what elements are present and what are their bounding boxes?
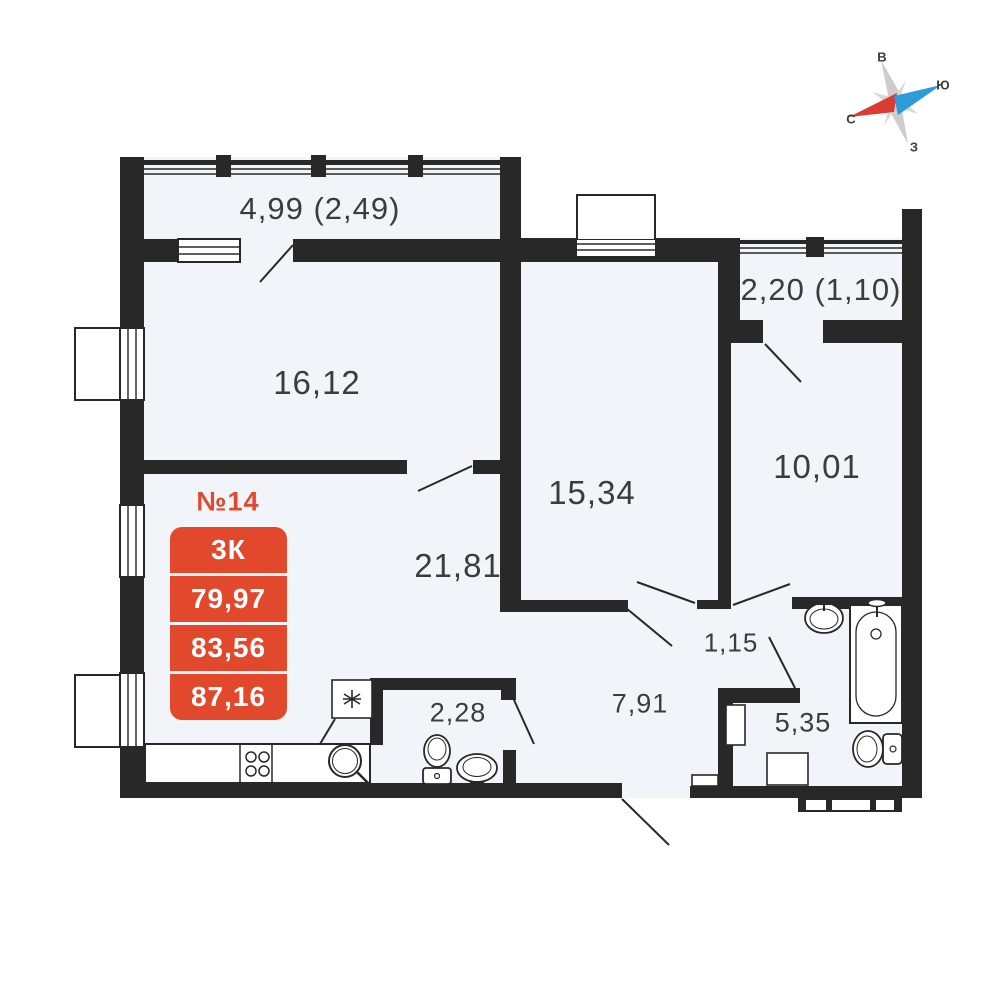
label-wc: 2,28	[430, 698, 487, 729]
vent-notches	[806, 800, 894, 810]
door-entrance	[622, 799, 669, 845]
window-bay	[75, 328, 120, 400]
compass-letter-left: С	[846, 112, 855, 127]
entrance-threshold	[692, 775, 718, 786]
window-bays	[75, 328, 120, 747]
wall	[718, 343, 731, 609]
label-bedroom-left: 16,12	[273, 364, 361, 402]
wall	[718, 238, 740, 343]
wall-wc	[503, 750, 516, 783]
window-bay	[75, 675, 120, 747]
window-left-1	[120, 328, 144, 400]
label-bedroom-mid: 15,34	[548, 474, 636, 512]
compass-letter-right: Ю	[936, 78, 949, 93]
window-left-2	[120, 505, 144, 577]
railing-post	[311, 155, 326, 177]
floor-plan-drawing	[0, 0, 1000, 1000]
wall-bottom	[690, 786, 922, 798]
railing-post	[216, 155, 231, 177]
wall-interior	[144, 460, 407, 474]
railing-post	[408, 155, 423, 177]
wall	[740, 320, 763, 343]
floor-plan: 4,99 (2,49) 16,12 2,20 (1,10) 15,34 10,0…	[0, 0, 1000, 1000]
exterior-cutout-topright	[902, 157, 922, 209]
wall-stub	[473, 460, 501, 474]
badge-area-3: 87,16	[170, 671, 287, 720]
compass-letter-top: В	[877, 50, 886, 65]
window-top-center	[577, 195, 655, 262]
shaft-niche	[767, 753, 808, 785]
kitchen	[145, 744, 371, 786]
wall-vertical-mid	[500, 157, 521, 612]
railing-post	[806, 237, 824, 257]
apartment-badge[interactable]: 3К 79,97 83,56 87,16	[170, 527, 287, 720]
toilet-icon	[423, 735, 451, 784]
window-left-3	[120, 673, 144, 747]
wall	[144, 239, 178, 262]
vent-notch	[832, 800, 870, 810]
label-lobby: 1,15	[704, 628, 759, 659]
apartment-number: №14	[196, 487, 259, 518]
wall	[718, 688, 800, 703]
wall-right	[902, 209, 922, 798]
wall	[293, 239, 503, 262]
bathroom-toilet-icon	[853, 731, 902, 767]
label-hall: 7,91	[612, 689, 669, 720]
label-bedroom-right: 10,01	[773, 448, 861, 486]
vent-notch	[806, 800, 826, 810]
wall-wc	[383, 678, 516, 690]
compass-rose	[849, 60, 941, 144]
label-living: 21,81	[414, 547, 502, 585]
shaft-niche	[726, 705, 745, 745]
window-balcony-top	[178, 239, 240, 262]
bathtub-icon	[850, 600, 902, 724]
compass-letter-bottom: З	[910, 140, 918, 155]
label-balcony-right: 2,20 (1,10)	[741, 272, 902, 308]
wall-top	[521, 238, 577, 262]
badge-area-2: 83,56	[170, 622, 287, 671]
label-bathroom: 5,35	[775, 708, 832, 739]
vent-notch	[876, 800, 894, 810]
wall-stub	[697, 600, 731, 609]
wall-wc	[501, 678, 516, 700]
label-balcony-top: 4,99 (2,49)	[240, 191, 401, 227]
wall-interior	[510, 600, 628, 612]
badge-area-1: 79,97	[170, 573, 287, 622]
badge-rooms-type: 3К	[170, 527, 287, 573]
